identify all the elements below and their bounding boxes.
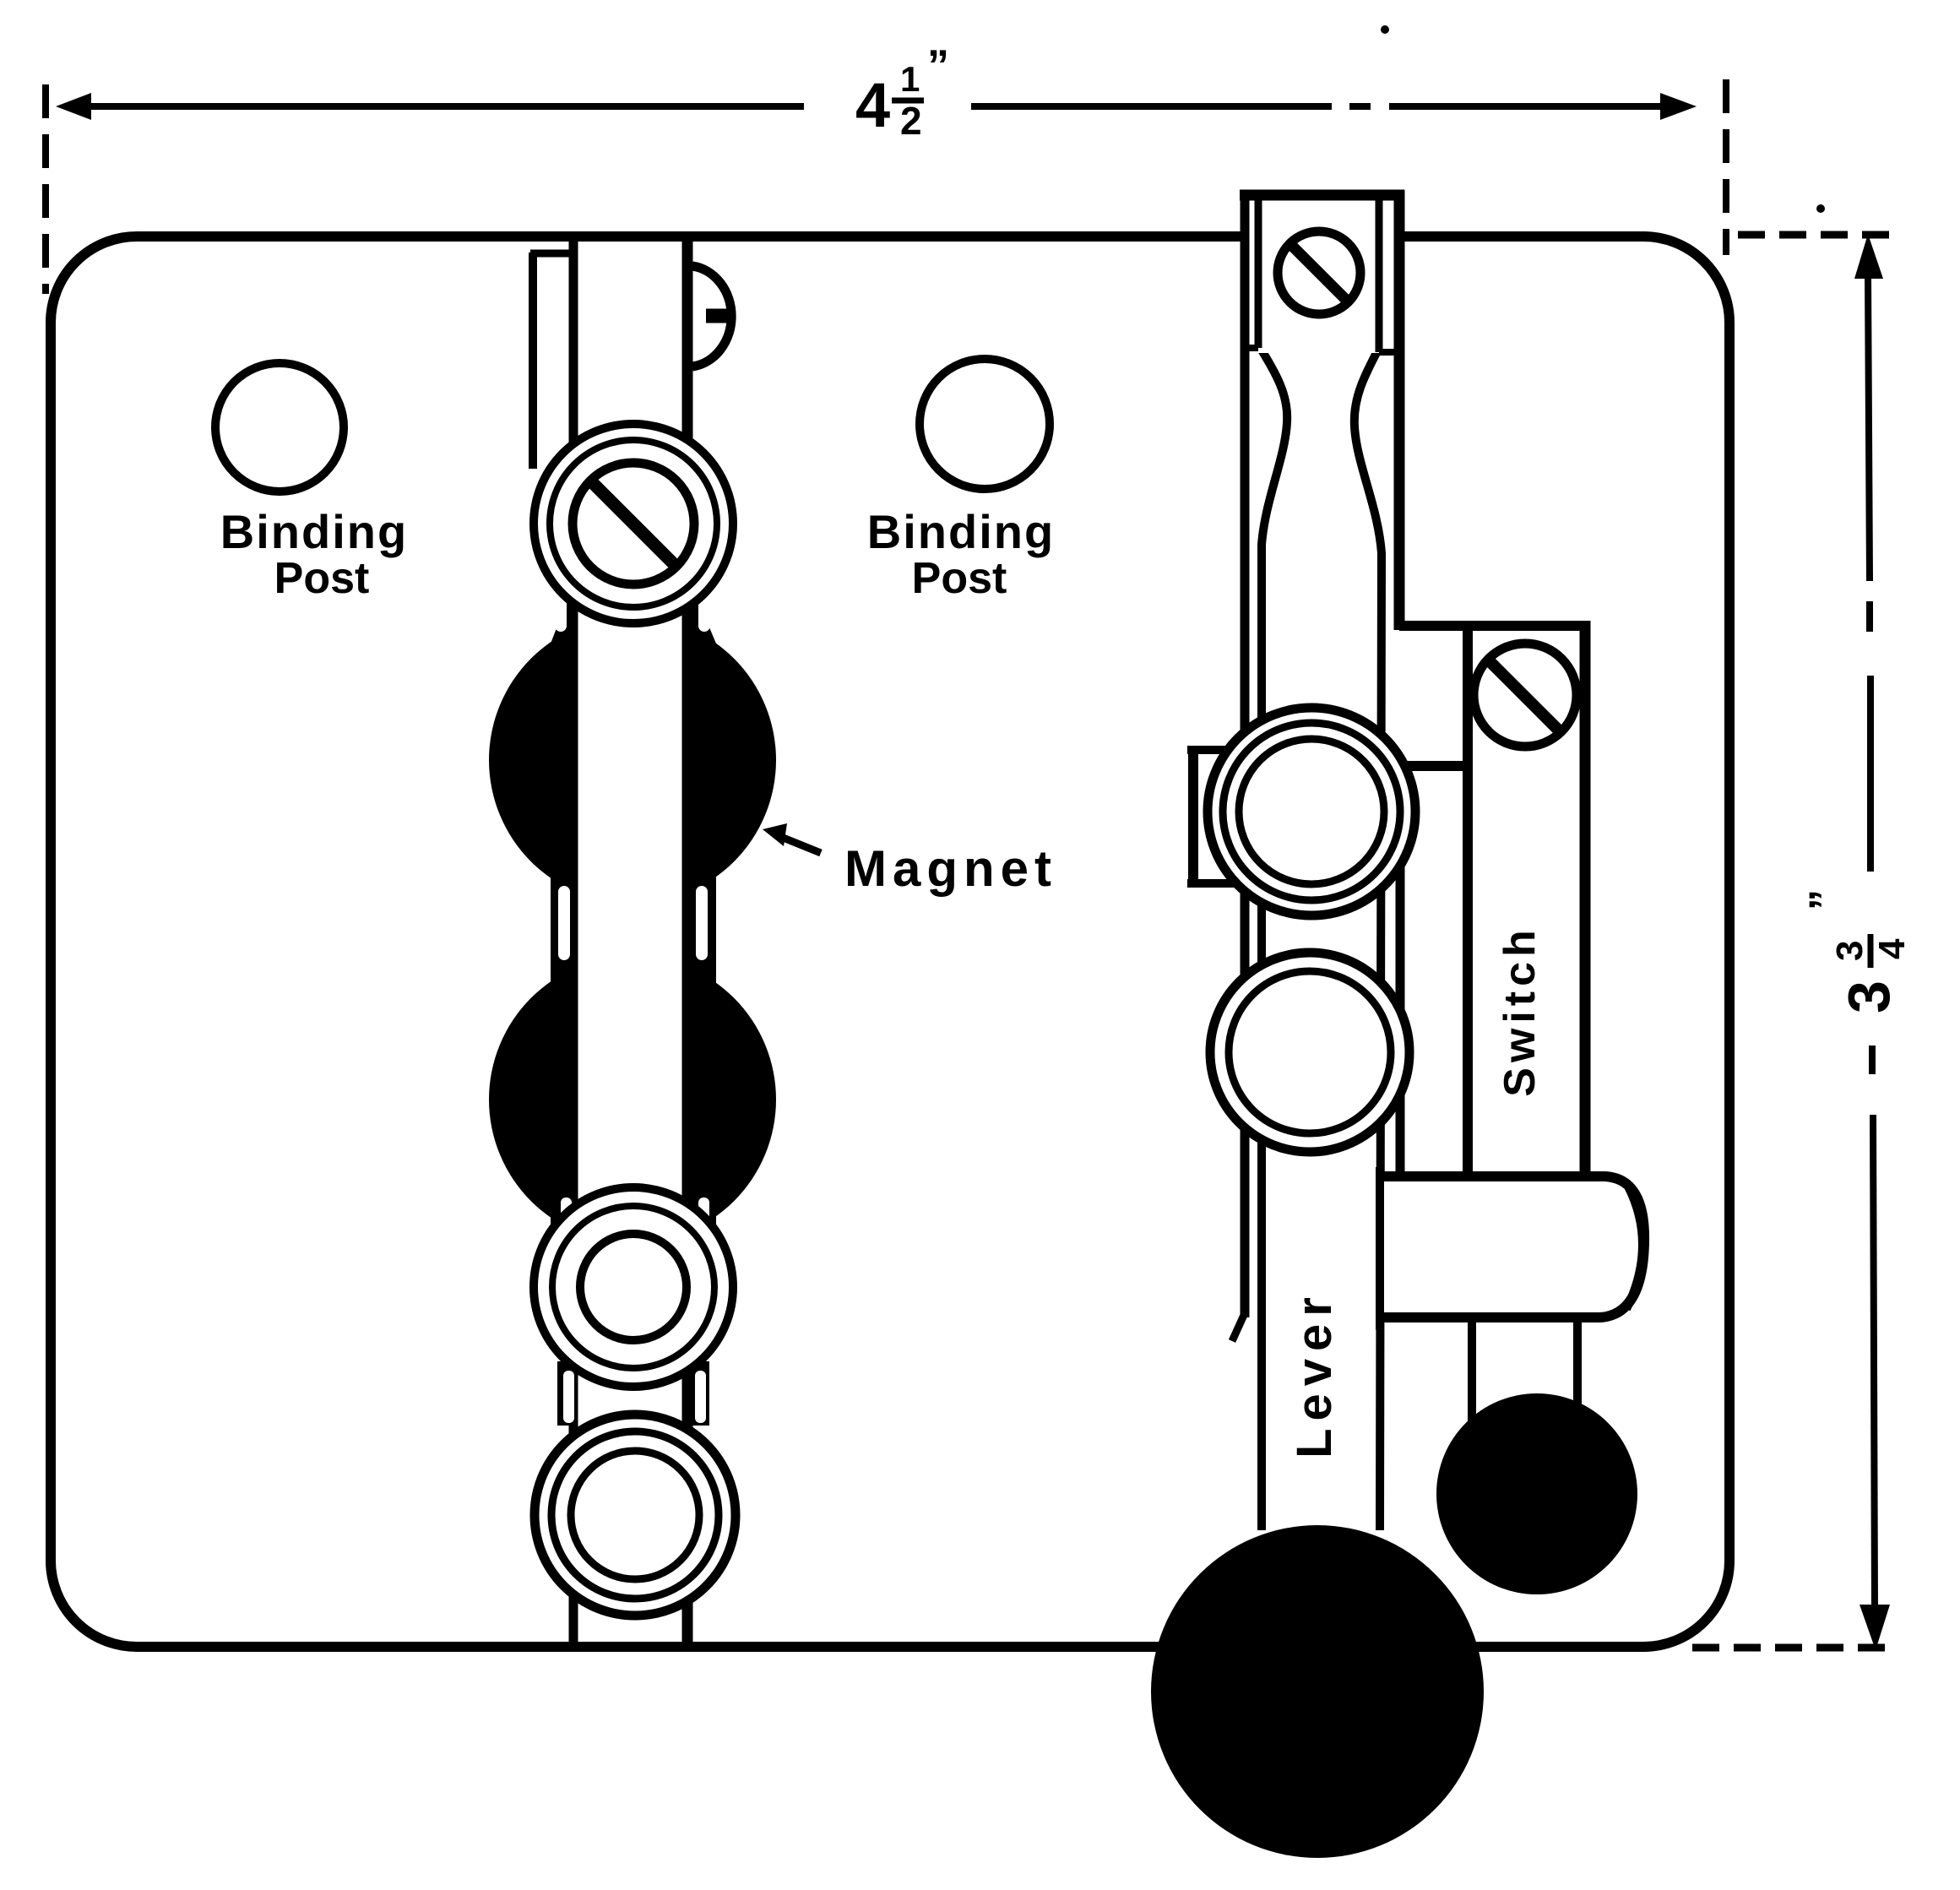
svg-text:”: ” bbox=[1800, 889, 1848, 910]
svg-text:4: 4 bbox=[1871, 938, 1913, 959]
svg-text:3: 3 bbox=[1829, 941, 1870, 961]
svg-text:Binding: Binding bbox=[220, 505, 408, 558]
svg-text:Post: Post bbox=[274, 554, 370, 603]
svg-text:”: ” bbox=[927, 41, 949, 90]
svg-text:Magnet: Magnet bbox=[844, 840, 1057, 897]
svg-text:Binding: Binding bbox=[867, 505, 1055, 558]
svg-text:Switch: Switch bbox=[1496, 925, 1545, 1097]
svg-text:Lever: Lever bbox=[1287, 1290, 1342, 1458]
svg-text:2: 2 bbox=[900, 99, 922, 143]
svg-text:1: 1 bbox=[900, 59, 920, 99]
svg-text:4: 4 bbox=[855, 70, 890, 140]
svg-text:3: 3 bbox=[1836, 980, 1902, 1013]
svg-text:Post: Post bbox=[912, 554, 1007, 603]
